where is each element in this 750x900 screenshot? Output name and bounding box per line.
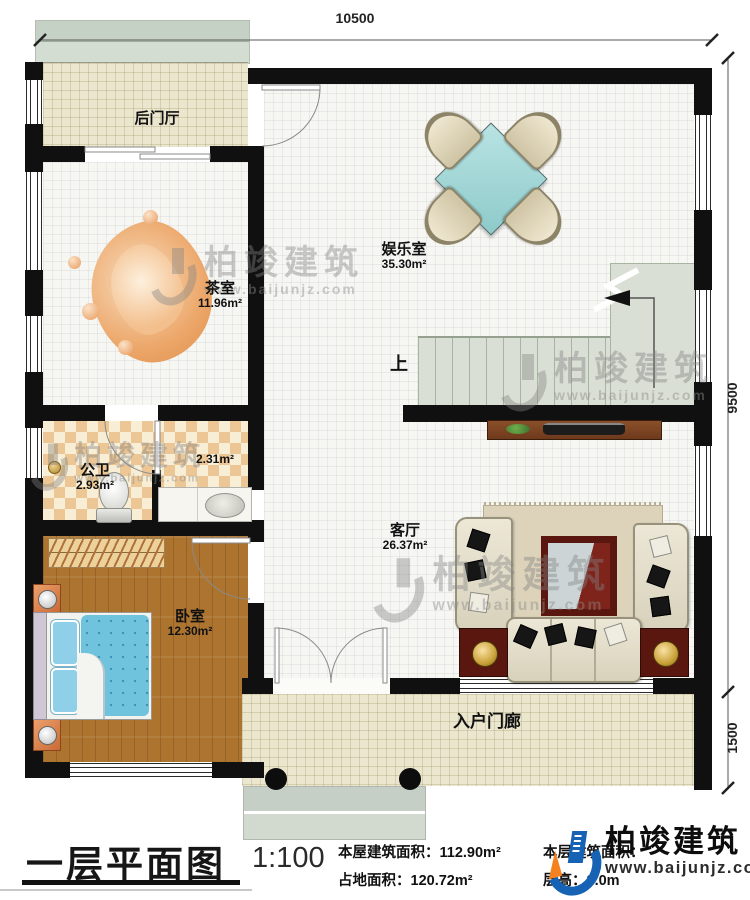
brand-logo-icon	[545, 826, 601, 888]
stairs-up-text: 上	[386, 354, 412, 375]
stat-land-area: 占地面积：120.72m²	[338, 869, 473, 890]
room-label-back-hall: 后门厅	[107, 110, 207, 127]
room-name: 茶室	[160, 280, 280, 297]
cabinet-plant	[506, 424, 530, 434]
room-area: 12.30m²	[140, 625, 240, 639]
room-label-bedroom: 卧室 12.30m²	[140, 608, 240, 639]
stone-pebble	[82, 303, 99, 320]
vanity-divider	[197, 488, 198, 521]
room-area: 2.31m²	[165, 453, 265, 467]
window	[26, 172, 42, 270]
room-name: 卧室	[140, 608, 240, 625]
bed-blanket-fold	[77, 653, 105, 719]
sliding-door	[85, 147, 210, 159]
wardrobe	[48, 538, 165, 568]
entry-double-door	[275, 628, 387, 683]
dimension-right-upper: 9500	[724, 370, 740, 426]
coffee-table	[541, 536, 617, 616]
room-area: 2.93m²	[45, 479, 145, 493]
stat-value: 120.72m²	[411, 873, 473, 889]
floor-plan-canvas: 柏竣建筑 www.baijunjz.com 柏竣建筑 www.baijunjz.…	[0, 0, 750, 900]
brand-logo-text: 柏竣建筑 www.baijunjz.com	[605, 826, 750, 878]
tv-cabinet	[487, 420, 662, 440]
loveseat	[455, 517, 513, 633]
room-label-living-room: 客厅 26.37m²	[355, 522, 455, 553]
sofa-pillow	[513, 624, 538, 649]
room-name: 客厅	[355, 522, 455, 539]
rug-fringe	[484, 502, 662, 506]
title-underline-thin	[0, 889, 252, 891]
room-name: 娱乐室	[344, 241, 464, 258]
title-underline	[22, 880, 240, 885]
room-label-tea-room: 茶室 11.96m²	[160, 280, 280, 311]
room-name: 入户门廊	[402, 712, 572, 732]
porch-column	[399, 768, 421, 790]
dimension-top: 10500	[305, 10, 405, 26]
bed	[46, 612, 152, 720]
room-name: 后门厅	[107, 110, 207, 127]
sofa	[506, 617, 642, 683]
room-label-bathroom: 公卫 2.93m²	[45, 462, 145, 493]
side-table-lamp	[640, 628, 689, 677]
window	[695, 290, 711, 382]
nightstand	[33, 719, 61, 751]
stat-label: 占地面积：	[338, 873, 411, 889]
sofa-pillow	[467, 529, 491, 553]
television	[543, 423, 625, 435]
sink	[205, 493, 245, 518]
stone-pebble	[68, 256, 81, 269]
room-area: 35.30m²	[344, 258, 464, 272]
porch-column	[265, 768, 287, 790]
stone-pebble	[143, 210, 158, 225]
vanity	[158, 487, 252, 522]
sofa-pillow	[650, 596, 671, 617]
dimension-right-lower: 1500	[724, 710, 740, 766]
room-label-porch: 入户门廊	[402, 712, 572, 732]
sofa-pillow	[649, 535, 672, 558]
window	[70, 763, 212, 777]
room-area: 11.96m²	[160, 297, 280, 311]
nightstand	[33, 584, 61, 613]
stat-label: 本屋建筑面积：	[338, 845, 440, 861]
toilet-tank	[96, 508, 132, 523]
brand-logo: 柏竣建筑 www.baijunjz.com	[545, 826, 750, 888]
bed-pillow	[51, 668, 79, 714]
bed-pillow	[51, 620, 79, 666]
stone-pebble	[118, 340, 133, 355]
sofa-pillow	[574, 626, 597, 649]
window	[26, 80, 42, 124]
sofa-pillow	[604, 623, 628, 647]
door-back-hall	[262, 85, 320, 146]
window	[26, 316, 42, 372]
door-bedroom	[192, 538, 250, 599]
stair-break-line	[594, 270, 638, 310]
room-name: 公卫	[45, 462, 145, 479]
side-table-lamp	[459, 628, 508, 677]
sofa-pillow	[464, 559, 487, 582]
window	[695, 446, 711, 536]
room-label-washroom: 2.31m²	[165, 453, 265, 467]
plan-scale: 1:100	[252, 842, 325, 875]
room-area: 26.37m²	[355, 539, 455, 553]
sofa-pillow	[468, 592, 489, 613]
stairs-up-label: 上	[386, 354, 412, 375]
sofa-pillow	[544, 623, 567, 646]
brand-website: www.baijunjz.com	[605, 859, 750, 879]
window	[26, 428, 42, 478]
stair-direction	[604, 290, 654, 388]
armchair	[633, 523, 689, 633]
brand-name: 柏竣建筑	[605, 826, 750, 859]
stat-value: 112.90m²	[440, 845, 501, 861]
stat-building-area: 本屋建筑面积：112.90m²	[338, 841, 501, 862]
room-label-entertainment: 娱乐室 35.30m²	[344, 241, 464, 272]
sofa-pillow	[646, 564, 670, 588]
window	[695, 115, 711, 210]
